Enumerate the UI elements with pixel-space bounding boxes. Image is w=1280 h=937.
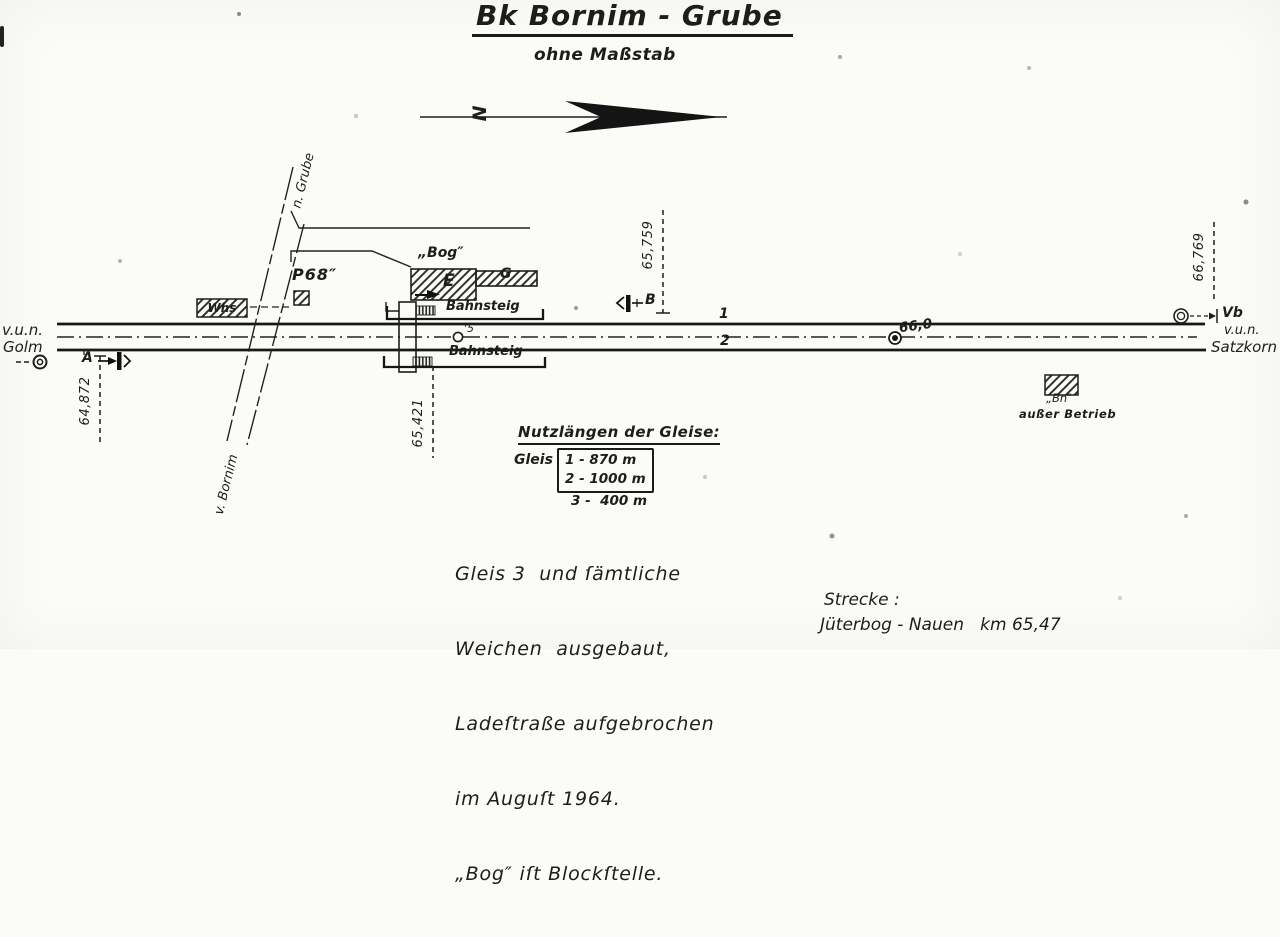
platform-top-label: Bahnsteig xyxy=(446,300,520,314)
p68-hut xyxy=(294,291,309,305)
signal-a-symbol xyxy=(98,352,130,370)
signal-5-label: '5 xyxy=(464,323,474,335)
track-lines xyxy=(57,324,1206,350)
vb-label: Vb xyxy=(1222,306,1243,321)
legend-row-2: 2 - 1000 m xyxy=(565,470,646,489)
scan-specks xyxy=(0,0,2,2)
road-horizontal xyxy=(291,211,530,267)
building-g-label: G xyxy=(500,267,512,282)
building-e-label: E xyxy=(443,272,455,291)
vb-signal-symbol xyxy=(1174,309,1217,323)
north-letter: N xyxy=(468,105,489,121)
bog-label: „Bog″ xyxy=(418,246,464,261)
km-mark-65759: 65,759 xyxy=(642,217,658,273)
legend-gleis-label: Gleis xyxy=(514,453,553,468)
right-station-name: Satzkorn xyxy=(1211,339,1277,356)
km-mark-64872: 64,872 xyxy=(79,373,95,429)
scan-edge-mark xyxy=(0,26,4,47)
km-mark-65421: 65,421 xyxy=(412,395,428,451)
platform-bottom-label: Bahnsteig xyxy=(449,345,523,359)
bog-building xyxy=(411,269,537,300)
legend-row-3: 3 - 400 m xyxy=(571,492,647,511)
north-arrow xyxy=(420,101,727,133)
page-title: Bk Bornim - Grube xyxy=(472,1,793,37)
golm-signal-symbol xyxy=(16,356,47,369)
signal-a-label: A xyxy=(82,351,93,366)
scale-note: ohne Maßstab xyxy=(534,46,676,65)
legend-box: 1 - 870 m 2 - 1000 m xyxy=(557,448,654,493)
signal-b-label: B xyxy=(645,293,656,308)
note-line-3: Ladeſtraße aufgebrochen xyxy=(455,712,715,737)
note-line-5: „Bog″ iſt Blockſtelle. xyxy=(455,862,715,887)
p68-label: P68″ xyxy=(292,266,337,284)
track-plan-scan: Bk Bornim - Grube ohne Maßstab N v.u.n. … xyxy=(0,0,1280,649)
left-station-direction: v.u.n. xyxy=(2,322,43,339)
km-mark-66769: 66,769 xyxy=(1193,229,1209,285)
whs-label: Whs xyxy=(197,299,247,317)
track-2-number: 2 xyxy=(720,334,730,349)
signal-b-symbol xyxy=(617,295,643,312)
note-line-1: Gleis 3 und ſämtliche xyxy=(455,562,715,587)
bn-label: „Bn″ xyxy=(1046,392,1071,405)
remarks-note: Gleis 3 und ſämtliche Weichen ausgebaut,… xyxy=(455,512,715,937)
route-label: Strecke : xyxy=(824,591,900,610)
legend-row-1: 1 - 870 m xyxy=(565,451,646,470)
signal-5-symbol xyxy=(453,332,462,341)
note-line-2: Weichen ausgebaut, xyxy=(455,637,715,662)
note-line-4: im Auguſt 1964. xyxy=(455,787,715,812)
legend-title: Nutzlängen der Gleise: xyxy=(518,424,720,445)
right-station-direction: v.u.n. xyxy=(1224,324,1260,338)
bn-status-note: außer Betrieb xyxy=(1019,408,1116,421)
track-1-number: 1 xyxy=(719,307,729,322)
left-station-name: Golm xyxy=(3,339,43,356)
route-value: Jüterbog - Nauen km 65,47 xyxy=(820,616,1061,635)
